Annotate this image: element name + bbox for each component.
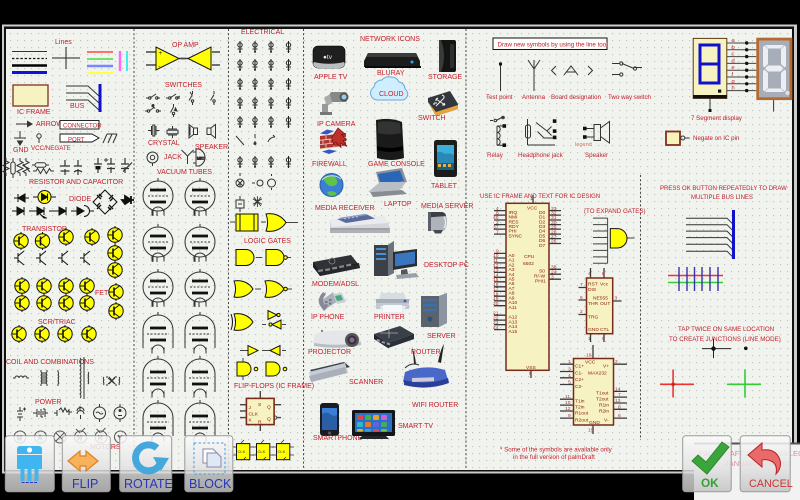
svg-text:VCC/NEGATE: VCC/NEGATE — [31, 145, 71, 152]
svg-text:SERVER: SERVER — [427, 333, 456, 340]
svg-text:APPLE TV: APPLE TV — [314, 74, 348, 81]
svg-text:T1out: T1out — [596, 391, 609, 397]
svg-text:OUT: OUT — [600, 301, 610, 307]
svg-text:VSS: VSS — [526, 365, 537, 371]
svg-text:FET: FET — [95, 290, 109, 297]
svg-text:Q: Q — [267, 405, 271, 411]
svg-text:MEDIA SERVER: MEDIA SERVER — [421, 203, 473, 210]
svg-text:-: - — [159, 64, 161, 70]
svg-text:VCC: VCC — [527, 206, 538, 212]
svg-text:FLIP: FLIP — [72, 477, 98, 491]
svg-text:BUS: BUS — [70, 103, 85, 110]
svg-text:SWITCHES: SWITCHES — [165, 82, 202, 89]
svg-text:OK: OK — [701, 476, 719, 490]
svg-text:14: 14 — [615, 386, 621, 392]
svg-text:1: 1 — [588, 336, 591, 342]
svg-text:6: 6 — [618, 413, 621, 419]
svg-text:PRESS OK BUTTON REPEATEDLY TO: PRESS OK BUTTON REPEATEDLY TO DRAW — [660, 186, 787, 192]
svg-text:1: 1 — [530, 196, 533, 202]
svg-text:MAX232: MAX232 — [588, 371, 607, 377]
svg-text:CLOUD: CLOUD — [379, 91, 404, 98]
svg-text:CLK: CLK — [258, 449, 266, 454]
svg-text:7: 7 — [618, 392, 621, 398]
svg-text:MEDIA RECEIVER: MEDIA RECEIVER — [315, 205, 375, 212]
svg-text:13: 13 — [615, 398, 621, 404]
svg-text:Lines: Lines — [55, 39, 72, 46]
svg-text:POWER: POWER — [35, 399, 61, 406]
svg-text:PHI1: PHI1 — [535, 279, 546, 285]
svg-text:1: 1 — [568, 359, 571, 365]
svg-text:●tv: ●tv — [323, 54, 333, 61]
svg-text:VCC: VCC — [585, 360, 596, 366]
svg-text:IC FRAME: IC FRAME — [17, 109, 51, 116]
svg-text:Test point: Test point — [486, 94, 513, 101]
svg-text:MODEM/ADSL: MODEM/ADSL — [312, 281, 359, 288]
svg-text:8: 8 — [602, 271, 605, 277]
svg-text:WIFI ROUTER: WIFI ROUTER — [412, 402, 458, 409]
svg-text:T2out: T2out — [596, 396, 609, 402]
svg-text:b: b — [732, 45, 735, 51]
svg-text:SMARTPHONE: SMARTPHONE — [313, 435, 363, 442]
svg-text:NETWORK ICONS: NETWORK ICONS — [360, 36, 420, 43]
svg-text:A15: A15 — [509, 329, 518, 335]
svg-text:in the full version of palmDra: in the full version of palmDraft — [513, 454, 595, 461]
svg-text:TAP TWICE ON SAME LOCATION: TAP TWICE ON SAME LOCATION — [678, 326, 774, 333]
svg-text:20: 20 — [493, 301, 499, 307]
svg-text:R1in: R1in — [599, 402, 609, 408]
svg-text:7 Segment display: 7 Segment display — [691, 115, 743, 122]
svg-text:T2in: T2in — [575, 404, 585, 410]
svg-text:BLURAY: BLURAY — [377, 70, 405, 77]
svg-text:C2-: C2- — [575, 384, 583, 390]
svg-text:TO CREATE JUNCTIONS (LINE MODE: TO CREATE JUNCTIONS (LINE MODE) — [669, 336, 781, 343]
svg-text:Headphone jack: Headphone jack — [518, 152, 564, 159]
svg-text:IP CAMERA: IP CAMERA — [317, 121, 356, 128]
svg-text:USE IC FRAME AND TEXT FOR IC D: USE IC FRAME AND TEXT FOR IC DESIGN — [480, 194, 600, 200]
svg-text:ELECTRICAL: ELECTRICAL — [241, 29, 284, 36]
svg-text:GND: GND — [588, 327, 599, 333]
svg-text:FIREWALL: FIREWALL — [312, 161, 347, 168]
svg-text:CANCEL: CANCEL — [749, 478, 793, 490]
svg-text:10: 10 — [565, 400, 571, 406]
svg-text:R2in: R2in — [599, 409, 609, 415]
svg-text:A11: A11 — [509, 305, 518, 311]
svg-text:DIODE: DIODE — [69, 196, 92, 203]
svg-text:Vcc: Vcc — [600, 282, 609, 288]
svg-text:SWITCH: SWITCH — [418, 115, 446, 122]
svg-text:SMART TV: SMART TV — [398, 423, 433, 430]
svg-text:SCANNER: SCANNER — [349, 379, 383, 386]
svg-text:26: 26 — [551, 239, 557, 245]
svg-text:SPEAKER: SPEAKER — [195, 144, 228, 151]
svg-text:CPU: CPU — [524, 254, 535, 260]
svg-text:D7: D7 — [539, 243, 546, 249]
svg-text:TABLET: TABLET — [431, 183, 458, 190]
svg-text:(TO EXPAND GATES): (TO EXPAND GATES) — [584, 208, 646, 215]
svg-text:GND: GND — [589, 420, 600, 426]
svg-text:Board designation: Board designation — [551, 94, 601, 101]
svg-text:R2out: R2out — [575, 417, 589, 423]
svg-text:MIC: MIC — [197, 156, 204, 161]
svg-text:24: 24 — [493, 325, 499, 331]
svg-text:6: 6 — [580, 295, 583, 301]
svg-text:Draw new symbols by using the: Draw new symbols by using the line tool — [498, 42, 608, 49]
svg-text:IP PHONE: IP PHONE — [311, 314, 345, 321]
svg-text:4: 4 — [588, 271, 591, 277]
svg-text:8: 8 — [618, 404, 621, 410]
svg-text:Antenna: Antenna — [522, 94, 546, 101]
svg-text:3: 3 — [568, 367, 571, 373]
svg-text:C2+: C2+ — [575, 377, 584, 383]
svg-text:ROUTER: ROUTER — [411, 349, 441, 356]
svg-text:PRINTER: PRINTER — [374, 314, 405, 321]
svg-text:12: 12 — [565, 406, 571, 412]
svg-text:11: 11 — [565, 394, 570, 400]
svg-text:VACUUM TUBES: VACUUM TUBES — [157, 169, 212, 176]
svg-text:7: 7 — [580, 282, 583, 288]
svg-text:R1out: R1out — [575, 410, 589, 416]
svg-text:Speaker: Speaker — [585, 152, 608, 159]
svg-text:c: c — [732, 52, 735, 58]
svg-text:R: R — [258, 420, 262, 426]
svg-text:d: d — [732, 58, 735, 64]
svg-text:GND: GND — [13, 147, 29, 154]
svg-text:C1-: C1- — [575, 371, 583, 377]
svg-text:* Some of the symbols are avai: * Some of the symbols are available only — [500, 447, 613, 454]
svg-text:STORAGE: STORAGE — [428, 74, 462, 81]
svg-text:RST: RST — [588, 282, 598, 288]
svg-text:DESKTOP PC: DESKTOP PC — [424, 262, 469, 269]
svg-text:9: 9 — [568, 413, 571, 419]
svg-text:h: h — [732, 86, 735, 92]
svg-text:T1in: T1in — [575, 399, 585, 405]
svg-text:CLK: CLK — [249, 412, 259, 418]
svg-text:SCR/TRIAC: SCR/TRIAC — [38, 319, 76, 326]
svg-text:2: 2 — [580, 309, 583, 315]
svg-text:5: 5 — [568, 380, 571, 386]
svg-text:----: ---- — [21, 475, 38, 489]
svg-text:NE555: NE555 — [593, 296, 608, 302]
svg-text:Q: Q — [267, 417, 271, 423]
svg-text:V+: V+ — [603, 364, 609, 370]
svg-text:LAPTOP: LAPTOP — [384, 201, 412, 208]
svg-text:3: 3 — [615, 296, 618, 302]
svg-text:C1+: C1+ — [575, 364, 584, 370]
svg-text:4: 4 — [568, 373, 571, 379]
svg-text:RESISTOR AND CAPACITOR: RESISTOR AND CAPACITOR — [29, 179, 123, 186]
svg-text:CRYSTAL: CRYSTAL — [148, 140, 180, 147]
svg-text:16: 16 — [586, 353, 592, 359]
svg-text:SYNC: SYNC — [509, 234, 523, 240]
svg-text:CLK: CLK — [278, 449, 286, 454]
svg-text:Two way switch: Two way switch — [608, 94, 652, 101]
svg-text:5: 5 — [529, 371, 532, 377]
svg-text:THR: THR — [588, 301, 599, 307]
svg-text:MULTIPLE BUS LINES: MULTIPLE BUS LINES — [691, 195, 753, 201]
svg-text:3: 3 — [551, 274, 554, 280]
svg-text:PORT: PORT — [68, 137, 85, 143]
svg-text:e: e — [732, 65, 735, 71]
svg-text:FLIP-FLOPS (IC FRAME): FLIP-FLOPS (IC FRAME) — [234, 383, 314, 390]
svg-text:Relay: Relay — [487, 152, 504, 159]
svg-text:CONNECTOR: CONNECTOR — [63, 123, 102, 129]
svg-text:g: g — [732, 79, 735, 85]
svg-text:JACK: JACK — [164, 154, 182, 161]
svg-text:CLK: CLK — [238, 449, 246, 454]
svg-text:DIS: DIS — [588, 287, 597, 293]
svg-text:OP AMP: OP AMP — [172, 42, 199, 49]
svg-text:LOGIC GATES: LOGIC GATES — [244, 238, 291, 245]
svg-text:legend: legend — [575, 142, 592, 148]
svg-text:PROJECTOR: PROJECTOR — [308, 349, 351, 356]
svg-text:ROTATE: ROTATE — [124, 477, 173, 491]
svg-text:GAME CONSOLE: GAME CONSOLE — [368, 161, 425, 168]
svg-text:15: 15 — [588, 428, 594, 434]
svg-text:5: 5 — [602, 336, 605, 342]
svg-text:BLOCK: BLOCK — [189, 477, 232, 491]
svg-text:6502: 6502 — [523, 261, 534, 267]
svg-text:CTL: CTL — [600, 327, 610, 333]
svg-text:V-: V- — [604, 417, 609, 423]
svg-text:TRG: TRG — [588, 315, 599, 321]
svg-text:ARROW: ARROW — [36, 121, 63, 128]
svg-text:7: 7 — [496, 229, 499, 235]
svg-text:Negate on IC pin: Negate on IC pin — [693, 135, 740, 142]
svg-text:2: 2 — [615, 359, 618, 365]
svg-text:+: + — [159, 51, 163, 57]
